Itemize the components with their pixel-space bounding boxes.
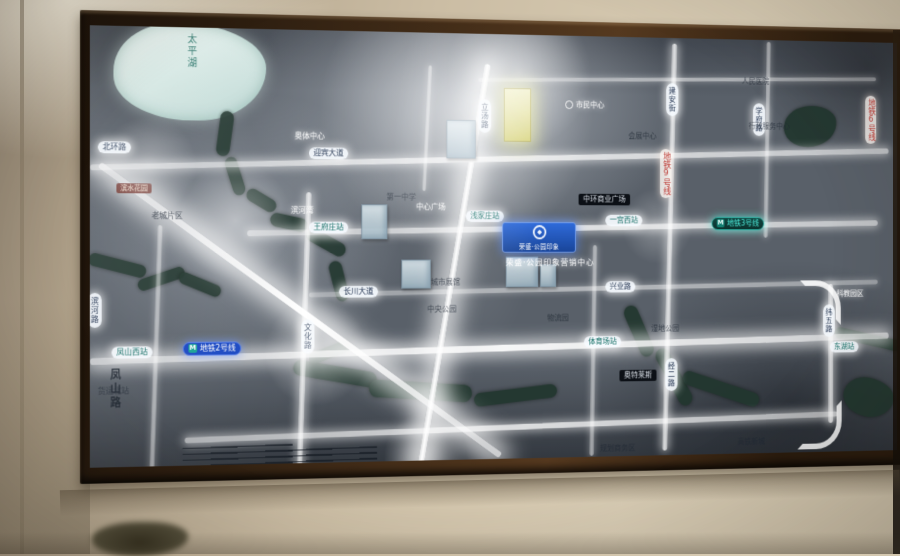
label-text: 纬五路 (825, 308, 833, 333)
label-text: 人民医院 (742, 77, 770, 86)
metro-station-label: 凤山西站 (112, 346, 153, 358)
label-text: 地铁3号线 (727, 219, 759, 228)
label-text: 科教园区 (837, 289, 864, 298)
label-text: 中心广场 (416, 203, 445, 212)
label-text: 会展中心 (628, 132, 656, 141)
poi-label: 滨河湾 (291, 206, 314, 215)
label-text: 物流园 (547, 314, 569, 323)
poi-label: 人民医院 (742, 77, 770, 86)
label-text: 兴业路 (610, 282, 631, 291)
map-surface: 太平湖 荣盛·公园印象 荣盛·公园印象营销中心 立汤路建安街学府路文化路滨河路经… (90, 25, 897, 468)
lake: 太平湖 (113, 25, 266, 121)
label-text: 滨水花园 (120, 184, 147, 192)
poi-label: 中心广场 (416, 203, 445, 212)
road-name-label: 滨河路 (90, 293, 101, 328)
metro-icon: M (717, 219, 725, 227)
project-logo-icon (532, 225, 545, 239)
metro-line-label: M地铁2号线 (183, 341, 242, 355)
label-text: 货运北站 (98, 386, 129, 395)
poi-ring-icon (565, 101, 573, 110)
road (763, 42, 770, 238)
waterway (244, 186, 278, 214)
poi-label: 物流园 (547, 314, 569, 323)
label-text: 滨河湾 (291, 206, 314, 215)
road (478, 78, 876, 82)
label-text: 奥体中心 (295, 132, 325, 142)
project-caption: 荣盛·公园印象营销中心 (506, 256, 640, 268)
wall-shade (0, 300, 90, 554)
metro-station-label: 体育场站 (584, 336, 621, 347)
label-text: 湿地公园 (651, 324, 679, 333)
label-text: 城市展馆 (431, 278, 460, 287)
poi-label: 奥体中心 (295, 132, 325, 142)
poi-tag: 中环商业广场 (579, 194, 630, 205)
building-icon (361, 204, 387, 239)
metro-station-label: 王府庄站 (309, 222, 348, 233)
metro-station-label: 浅家庄站 (466, 210, 504, 221)
poi-label: 第一中学 (386, 193, 416, 202)
label-text: 滨河路 (90, 297, 99, 324)
waterway (177, 271, 222, 299)
label-text: 浅家庄站 (470, 211, 499, 220)
label-text: 东湖站 (834, 342, 854, 351)
label-text: 建安街 (668, 87, 676, 113)
metro-line-label: 地铁9号线 (660, 149, 671, 198)
poi-label: 市民中心 (565, 100, 604, 110)
lake-label: 太平湖 (183, 33, 197, 69)
label-text: 迎宾大道 (313, 148, 343, 157)
label-text: 市民中心 (576, 101, 604, 111)
landmark-highlight-building (504, 88, 531, 142)
road-curve (800, 280, 841, 325)
poi-label: 老城片区 (152, 211, 183, 221)
building-icon (401, 260, 431, 289)
label-text: 高铁新城 (737, 437, 765, 446)
poi-label: 高铁新城 (737, 437, 765, 447)
label-text: 文化路 (304, 323, 312, 349)
metro-icon: M (188, 344, 197, 353)
label-text: 立汤路 (481, 103, 489, 129)
label-text: 老城片区 (152, 211, 183, 220)
waterway (90, 252, 148, 279)
road-name-label: 立汤路 (478, 99, 490, 133)
road-name-label: 经二路 (665, 358, 677, 391)
label-text: 王府庄站 (313, 223, 343, 232)
road (149, 225, 162, 468)
metro-station-label: 一宫西站 (605, 215, 642, 226)
label-text: 长川大道 (344, 287, 374, 296)
label-text: 凤山西站 (116, 347, 147, 356)
poi-label: 行政服务中心 (749, 122, 790, 131)
road-name-label: 建安街 (666, 83, 678, 116)
poi-tag: 滨水花园 (116, 183, 151, 194)
road-name-label: 纬五路 (823, 304, 835, 336)
label-text: 体育场站 (588, 337, 616, 346)
building-icon (446, 120, 475, 159)
road-curve (798, 400, 842, 449)
label-text: 中央公园 (427, 305, 456, 314)
poi-label: 科教园区 (837, 289, 864, 298)
poi-label: 中央公园 (427, 305, 456, 314)
road-name-label: 长川大道 (339, 286, 378, 297)
poi-label: 货运北站 (98, 386, 129, 396)
project-name: 荣盛·公园印象 (519, 241, 559, 251)
waterway (781, 103, 838, 151)
label-text: 一宫西站 (610, 216, 638, 225)
waterway (841, 374, 897, 421)
project-marker-badge: 荣盛·公园印象 (502, 222, 576, 253)
road-name-label: 迎宾大道 (309, 147, 348, 159)
poi-label: 城市展馆 (431, 278, 460, 287)
road-name-label: 学府路 (753, 103, 765, 136)
label-text: 经二路 (668, 362, 676, 388)
road (422, 65, 432, 191)
label-text: 地铁2号线 (200, 343, 236, 353)
label-text: 地铁6号线 (867, 99, 875, 142)
label-text: 地铁9号线 (662, 152, 671, 195)
metro-line-label: 地铁6号线 (865, 96, 876, 144)
waterway (473, 383, 557, 407)
map-panel: 太平湖 荣盛·公园印象 荣盛·公园印象营销中心 立汤路建安街学府路文化路滨河路经… (80, 10, 900, 484)
label-text: 北环路 (103, 142, 127, 151)
label-text: 规划商务区 (600, 444, 635, 453)
metro-line-label: M地铁3号线 (711, 217, 764, 230)
road-name-label: 兴业路 (605, 281, 635, 292)
poi-label: 湿地公园 (651, 324, 679, 333)
poi-label: 会展中心 (628, 132, 656, 141)
label-text: 中环商业广场 (583, 195, 626, 204)
road-name-label: 北环路 (98, 141, 131, 153)
label-text: 行政服务中心 (749, 122, 790, 131)
label-text: 奥特莱斯 (624, 371, 652, 380)
poi-tag: 奥特莱斯 (619, 370, 656, 381)
waterway (681, 369, 761, 408)
label-text: 第一中学 (386, 193, 416, 202)
metro-station-label: 东湖站 (830, 341, 859, 352)
poi-label: 规划商务区 (600, 444, 635, 454)
road-name-label: 文化路 (301, 319, 314, 353)
